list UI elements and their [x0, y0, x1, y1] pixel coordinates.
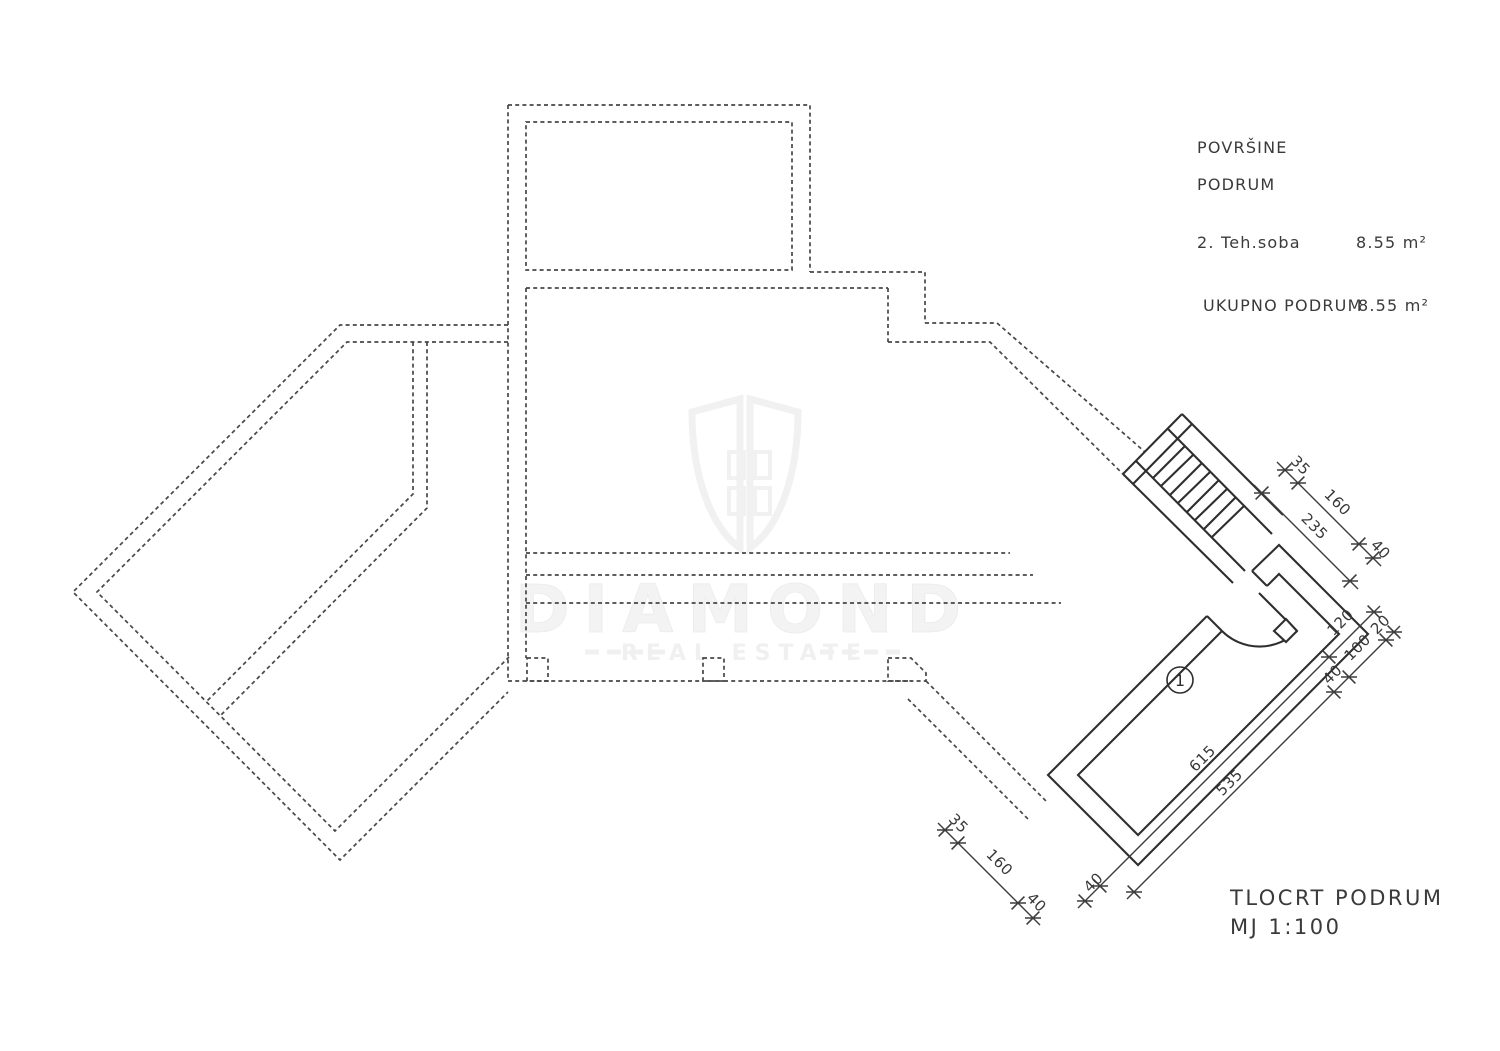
legend-title: POVRŠINE — [1197, 138, 1288, 157]
legend-row-label: 2. Teh.soba — [1197, 233, 1301, 252]
room-marker: 1 — [1167, 667, 1193, 693]
area-legend: POVRŠINE PODRUM 2. Teh.soba 8.55 m² UKUP… — [1197, 138, 1429, 315]
dim-chain-stair-top: 35 160 40 — [1277, 452, 1394, 566]
wing-divider-wall-2 — [220, 342, 427, 716]
watermark-tagline: REAL ESTATE — [621, 641, 869, 666]
dim-label: 535 — [1212, 765, 1246, 799]
tech-room-outer-wall — [1048, 545, 1368, 865]
left-wing-inner-wall — [97, 342, 509, 831]
dim-chain-room-outer: 120 615 40 — [1077, 605, 1382, 908]
door-jambs — [1207, 571, 1267, 631]
se-link-wall-outer — [926, 681, 1046, 801]
dim-label: 35 — [1287, 452, 1314, 479]
watermark: DIAMOND REAL ESTATE — [515, 399, 975, 666]
dim-label: 615 — [1185, 741, 1219, 775]
watermark-brand: DIAMOND — [515, 571, 975, 648]
floorplan-drawing: DIAMOND REAL ESTATE — [0, 0, 1500, 1051]
floorplan-canvas: DIAMOND REAL ESTATE — [0, 0, 1500, 1051]
dim-label: 160 — [1321, 485, 1355, 519]
legend-total-label: UKUPNO PODRUM — [1203, 296, 1363, 315]
column-1 — [527, 658, 548, 681]
legend-floor: PODRUM — [1197, 175, 1275, 194]
drawing-scale: MJ 1:100 — [1230, 915, 1342, 939]
dim-chain-stair-bottom: 35 160 40 — [937, 810, 1050, 925]
dim-label: 35 — [945, 810, 972, 837]
room-marker-number: 1 — [1175, 671, 1185, 690]
stair-wall-sw-outer — [1123, 474, 1233, 583]
top-room-outer-wall — [508, 105, 810, 272]
existing-walls-dashed — [73, 105, 1145, 860]
tech-room-solid-walls — [1048, 414, 1368, 865]
se-link-wall-inner — [908, 699, 1028, 819]
stair-wall-sw-inner — [1136, 461, 1245, 571]
dim-label: 160 — [983, 845, 1017, 879]
door-stop-block — [1274, 619, 1297, 642]
dim-label: 100 — [1340, 630, 1374, 664]
diamond-shield-icon — [692, 399, 798, 548]
top-room-inner-wall — [526, 122, 792, 270]
dim-label: 235 — [1298, 509, 1332, 543]
left-wing-outer-wall — [73, 325, 508, 860]
title-block: TLOCRT PODRUM MJ 1:100 — [1229, 886, 1443, 939]
drawing-title: TLOCRT PODRUM — [1229, 886, 1443, 910]
wing-divider-wall-1 — [206, 342, 413, 702]
column-3 — [888, 658, 926, 681]
legend-row-value: 8.55 m² — [1356, 233, 1427, 252]
ne-corridor-wall-inner — [888, 342, 1139, 490]
legend-total-value: 8.55 m² — [1358, 296, 1429, 315]
dim-label: 40 — [1080, 869, 1107, 896]
ne-jog-outer — [810, 272, 925, 323]
